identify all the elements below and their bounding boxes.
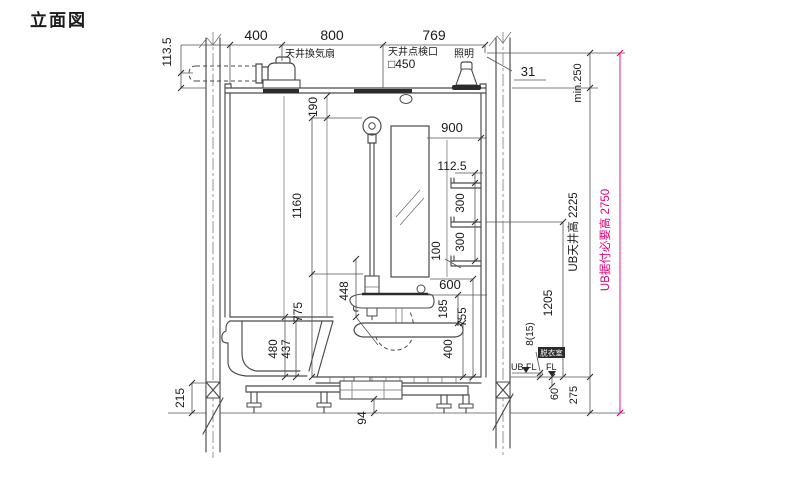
left-wall-panel — [225, 93, 230, 317]
ub-ceiling-height: UB天井高 2225 — [566, 192, 580, 271]
elevation-drawing: 立面図 — [0, 0, 800, 500]
dim-437: 437 — [281, 339, 293, 358]
dim-1160: 1160 — [290, 193, 304, 219]
dim-8-15: 8(15) — [525, 322, 536, 345]
dim-300-b: 300 — [455, 232, 467, 251]
dim-112-5: 112.5 — [437, 159, 466, 173]
dim-300-a: 300 — [455, 193, 467, 212]
dim-275: 275 — [568, 386, 580, 404]
vent-fan-label: 天井換気扇 — [285, 47, 335, 60]
mirror — [391, 126, 429, 277]
dim-400-counter: 400 — [443, 339, 455, 358]
downlight — [452, 62, 481, 90]
dim-215: 215 — [173, 388, 187, 408]
ub-floor-label: UB.FL — [511, 362, 537, 372]
dim-600: 600 — [439, 277, 461, 292]
dim-113-5: 113.5 — [160, 37, 174, 66]
dim-60: 60 — [549, 388, 561, 400]
fan-mount-strip — [263, 89, 299, 93]
light-label: 照明 — [454, 48, 474, 60]
drain-trap — [340, 377, 473, 413]
dim-480: 480 — [268, 339, 280, 358]
dim-775: 775 — [291, 302, 305, 322]
dim-1205: 1205 — [541, 289, 555, 316]
hatch-knob — [400, 95, 412, 104]
left-wall — [199, 32, 223, 458]
dim-448: 448 — [339, 281, 351, 300]
dim-900: 900 — [441, 120, 463, 135]
dim-190: 190 — [306, 97, 320, 117]
dim-755: 755 — [457, 307, 469, 326]
shower-slide-bar — [370, 143, 374, 276]
shower-head — [363, 117, 381, 143]
dim-400: 400 — [244, 27, 268, 43]
shelf — [451, 178, 481, 188]
dim-100: 100 — [431, 241, 443, 260]
dim-31: 31 — [521, 64, 535, 79]
faucet — [350, 285, 434, 323]
dim-185: 185 — [438, 299, 450, 318]
shelf — [451, 217, 481, 227]
required-install-height: UB据付必要高 2750 — [598, 189, 612, 291]
dim-800: 800 — [320, 27, 344, 43]
drawing-canvas: 立面図 — [0, 0, 800, 500]
dim-94: 94 — [355, 411, 369, 425]
inspection-hatch-strip — [354, 89, 412, 93]
page-title: 立面図 — [30, 10, 87, 30]
right-wall — [489, 32, 513, 455]
floor-label: FL — [546, 362, 557, 372]
dim-769: 769 — [422, 27, 446, 43]
tub-support-frame — [246, 386, 352, 413]
room-label: 脱衣室 — [540, 348, 563, 358]
faucet-knob — [417, 285, 425, 293]
inspection-port-size: □450 — [388, 57, 416, 71]
min-clearance: min.250 — [572, 63, 584, 102]
